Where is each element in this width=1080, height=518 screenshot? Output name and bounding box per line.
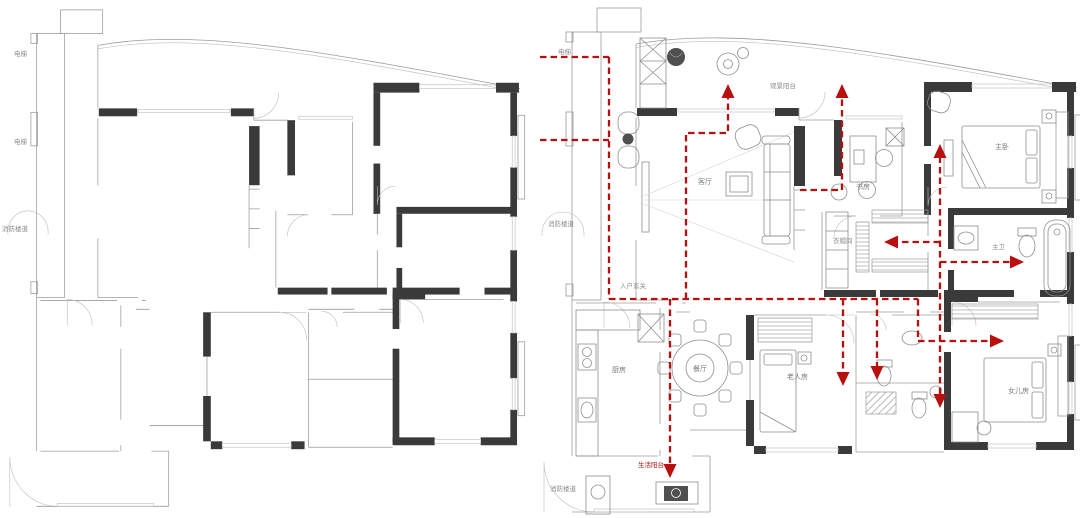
arrow-down-shared-bath (871, 366, 884, 380)
label-entry: 入户玄关 (620, 281, 647, 290)
label-service-balcony: 生活阳台 (638, 460, 664, 469)
arrow-right-master-bath (1010, 256, 1024, 269)
plans-svg: 电梯 电梯 消防楼道 (0, 0, 1080, 518)
plant-icon (623, 134, 634, 145)
arrow-up-master (934, 144, 947, 158)
laundry-area (586, 476, 698, 514)
tv-console (642, 162, 649, 232)
label-elevator-upper: 电梯 (14, 49, 28, 58)
arrow-down-elder-room (837, 372, 850, 386)
arrow-down-service-balcony (664, 464, 677, 478)
label-study: 书房 (856, 182, 870, 191)
balcony-flowers (717, 48, 749, 76)
arrow-up-view-balcony (722, 84, 735, 98)
arrow-up-study-balcony (836, 84, 849, 98)
label-elder-room: 老人房 (787, 372, 808, 381)
label-elevator-lower: 电梯 (14, 137, 28, 146)
label-view-balcony: 观景阳台 (770, 81, 796, 90)
label-elevator: 电梯 (558, 47, 572, 56)
right-floor-plan: 电梯 消防楼道 入户玄关 观景阳台 客厅 书房 主卧 衣帽间 主卫 餐厅 厨房 … (540, 8, 1080, 514)
label-daughter-room: 女儿房 (1008, 386, 1029, 395)
left-plan-labels: 电梯 电梯 消防楼道 (2, 49, 29, 233)
sight-lines (644, 132, 794, 262)
left-floor-plan: 电梯 电梯 消防楼道 (2, 10, 525, 506)
sofa (762, 136, 790, 244)
label-master-bath: 主卫 (992, 242, 1006, 251)
bay-window-seat (1056, 112, 1068, 198)
label-dining: 餐厅 (693, 364, 707, 373)
lounge-chair (831, 184, 847, 200)
label-master: 主卧 (995, 142, 1009, 151)
label-fire-stair-bottom: 消防楼道 (550, 484, 577, 493)
circulation-flow (540, 57, 1024, 478)
label-closet: 衣帽间 (833, 236, 853, 245)
kitchen-counters (576, 310, 664, 456)
label-fire-stair: 消防楼道 (2, 224, 29, 233)
entry-cabinet (640, 38, 666, 108)
floor-plan-comparison-image: 电梯 电梯 消防楼道 (0, 0, 1080, 518)
label-fire-stair: 消防楼道 (548, 219, 575, 228)
master-bed (944, 110, 1056, 203)
label-kitchen: 厨房 (612, 365, 626, 374)
arrow-right-daughter-room (990, 335, 1004, 348)
flow-to-view-balcony (686, 97, 728, 299)
arrow-left-closet (884, 236, 898, 249)
daughter-room-furniture (952, 304, 1068, 442)
flow-arrows (664, 84, 1025, 478)
coffee-table (726, 172, 752, 196)
label-living: 客厅 (698, 177, 712, 186)
